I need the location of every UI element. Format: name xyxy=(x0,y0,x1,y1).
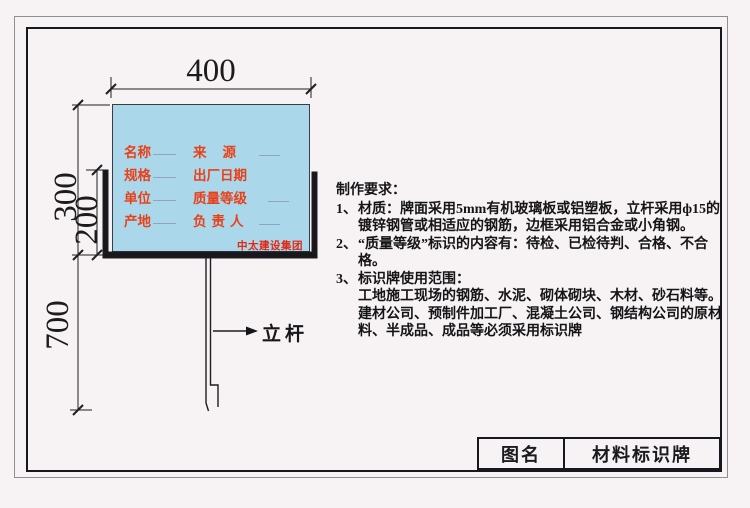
title-block: 图名 材料标识牌 xyxy=(477,437,721,470)
dimension-width: 400 xyxy=(181,53,241,89)
field-label-spec: 规格 xyxy=(124,164,151,184)
note-item: 2、 “质量等级”标识的内容有：待检、已检待判、合格、不合格。 xyxy=(336,236,728,271)
board-row: 名称 来源 xyxy=(124,141,310,157)
board-row: 规格 出厂日期 xyxy=(124,164,310,180)
note-number: 2、 xyxy=(336,236,358,271)
title-block-label: 图名 xyxy=(479,439,565,468)
field-label-name: 名称 xyxy=(124,141,151,161)
blank-line xyxy=(153,154,176,155)
drawing-title: 材料标识牌 xyxy=(565,439,719,468)
blank-line xyxy=(259,155,280,156)
blank-line xyxy=(153,177,176,178)
note-item: 1、 材质：牌面采用5mm有机玻璃板或铝塑板，立杆采用ф15的镀锌钢管或相适应的… xyxy=(336,201,728,236)
dimension-frame-height: 200 xyxy=(59,192,115,248)
blank-line xyxy=(153,223,176,224)
notes-heading: 制作要求： xyxy=(336,182,728,200)
board-row: 单位 质量等级 xyxy=(124,187,310,203)
pole-label: 立杆 xyxy=(262,319,308,346)
blank-line xyxy=(153,200,176,201)
company-name: 中太建设集团 xyxy=(237,238,303,253)
note-text: 标识牌使用范围： 工地施工现场的钢筋、水泥、砌体砌块、木材、砂石料等。建材公司、… xyxy=(358,271,728,341)
board-row: 产地 负责人 xyxy=(124,210,310,226)
field-label-person-in-charge: 负责人 xyxy=(193,210,249,230)
blank-line xyxy=(259,224,280,225)
blank-line xyxy=(268,201,289,202)
drawing-sheet: { "board": { "rows": [ {"left": "名称", "r… xyxy=(0,0,750,508)
note-number: 1、 xyxy=(336,201,358,236)
note-number: 3、 xyxy=(336,271,358,341)
field-label-quality-grade: 质量等级 xyxy=(193,187,247,207)
field-label-source: 来源 xyxy=(193,141,252,161)
field-label-factory-date: 出厂日期 xyxy=(193,164,247,184)
note-text: “质量等级”标识的内容有：待检、已检待判、合格、不合格。 xyxy=(358,236,728,271)
dimension-pole-depth: 700 xyxy=(30,297,86,353)
note-item: 3、 标识牌使用范围： 工地施工现场的钢筋、水泥、砌体砌块、木材、砂石料等。建材… xyxy=(336,271,728,341)
field-label-unit: 单位 xyxy=(124,187,151,207)
field-label-origin: 产地 xyxy=(124,210,151,230)
note-text: 材质：牌面采用5mm有机玻璃板或铝塑板，立杆采用ф15的镀锌钢管或相适应的钢筋，… xyxy=(358,201,728,236)
sign-board-panel: 名称 来源 规格 出厂日期 单位 质量等级 产地 负责人 中太建设集团 xyxy=(112,104,310,252)
notes-block: 制作要求： 1、 材质：牌面采用5mm有机玻璃板或铝塑板，立杆采用ф15的镀锌钢… xyxy=(336,182,728,341)
